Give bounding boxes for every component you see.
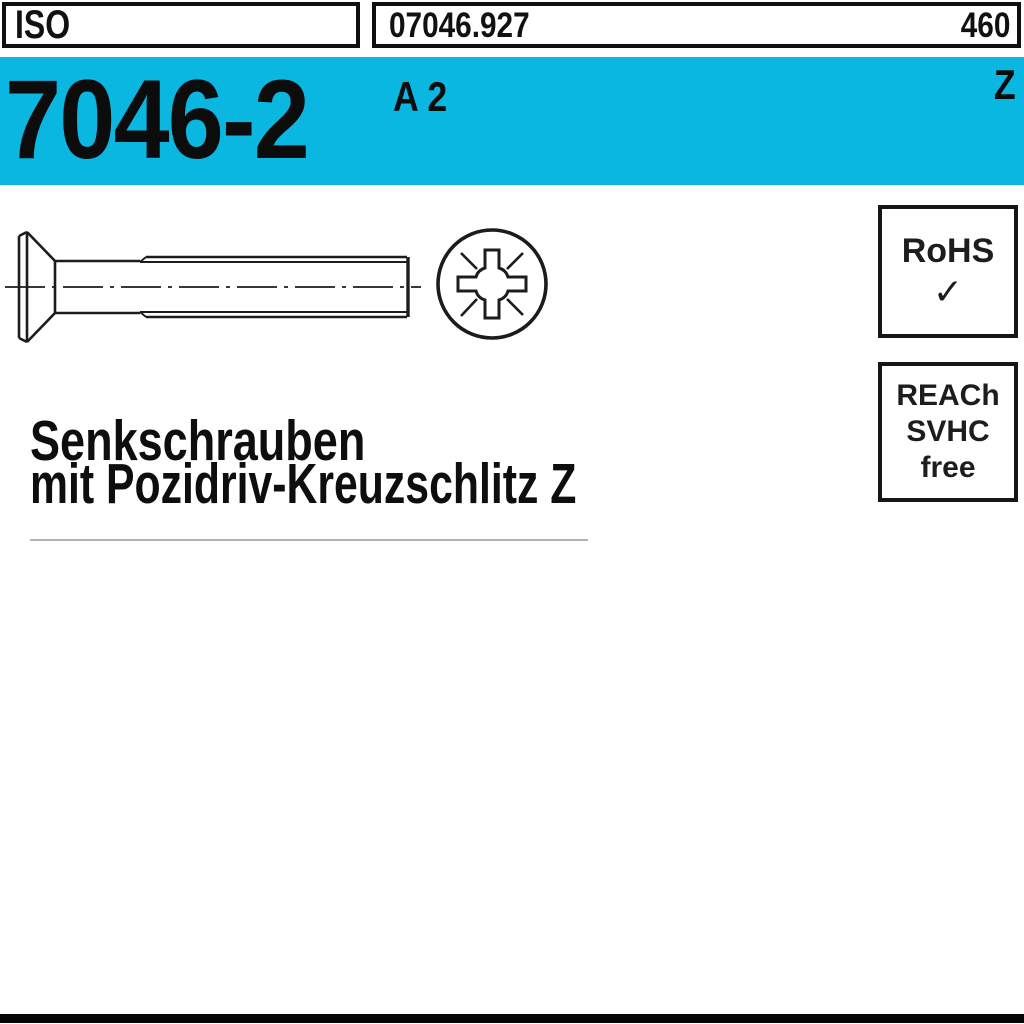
article-number: 07046.927 (389, 8, 530, 43)
screw-head-pozidriv-view (438, 230, 546, 338)
material-grade: A 2 (393, 76, 447, 118)
title-underline (30, 539, 588, 541)
reach-label: REACh (896, 378, 999, 414)
iso-label: ISO (15, 5, 70, 45)
product-title-text2: mit Pozidriv-Kreuzschlitz Z (30, 456, 576, 513)
drive-code: Z (994, 64, 1016, 106)
page-number: 460 (960, 8, 1010, 43)
product-title-line2: mit Pozidriv-Kreuzschlitz Z (30, 456, 758, 513)
bottom-bar (0, 1014, 1024, 1023)
rohs-label: RoHS (902, 233, 995, 270)
pozidriv-diagonal-marks (461, 253, 523, 316)
head-outline (438, 230, 546, 338)
header-article-cell: 07046.927 460 (372, 2, 1021, 48)
screw-technical-drawing (0, 215, 600, 395)
svhc-label: SVHC (906, 414, 989, 450)
standard-number: 7046-2 (5, 64, 308, 176)
reach-badge: REACh SVHC free (878, 362, 1018, 502)
screw-side-view (5, 232, 421, 342)
free-label: free (920, 450, 975, 486)
standard-banner: 7046-2 A 2 Z (0, 57, 1024, 185)
check-icon: ✓ (933, 274, 963, 310)
rohs-badge: RoHS ✓ (878, 205, 1018, 338)
catalog-product-image: ISO 07046.927 460 7046-2 A 2 Z (0, 0, 1024, 1024)
header-iso-cell: ISO (2, 2, 360, 48)
